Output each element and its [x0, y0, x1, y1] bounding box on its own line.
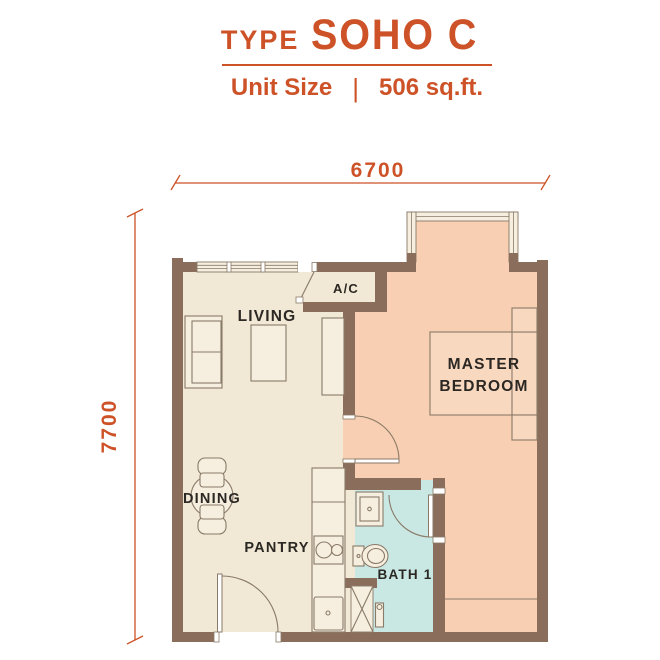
master-door-leaf: [355, 459, 399, 463]
bay-right-post: [509, 253, 518, 272]
ac-door-jamb: [296, 297, 303, 303]
service-shaft: [351, 586, 373, 632]
height-dimension-value: 7700: [98, 399, 121, 454]
vanity-basin: [356, 492, 383, 526]
floor-plan-drawing: LIVING A/C MASTER BEDROOM DINING PANTRY …: [0, 0, 660, 660]
window-mullion: [261, 262, 265, 272]
entrance-door-leaf: [218, 574, 223, 632]
pantry-counter: [312, 468, 345, 632]
wall-living-master-divider: [343, 312, 355, 415]
master-door-opening: [343, 415, 355, 463]
dining-place-setting: [200, 473, 224, 487]
width-dimension-value: 6700: [351, 159, 406, 182]
shower-fixture: [376, 603, 384, 627]
sink-bowl-large: [316, 542, 332, 558]
wall-top-master-right: [518, 262, 537, 272]
toilet-bowl-inner: [368, 549, 385, 564]
bath-doorway: [421, 480, 433, 490]
door-jamb: [433, 488, 445, 494]
door-jamb: [276, 632, 281, 642]
toilet-flush-button: [357, 555, 360, 558]
bed: [430, 332, 537, 415]
window-mullion: [227, 262, 231, 272]
wall-ac-bottom: [303, 302, 387, 312]
bath-label: BATH 1: [378, 567, 433, 582]
sink-bowl-small: [332, 545, 343, 556]
living-window-band: [197, 262, 298, 272]
wall-right: [537, 260, 548, 642]
entrance-opening: [218, 632, 278, 642]
nightstand-bottom: [512, 415, 537, 440]
wall-bath-top: [343, 478, 421, 490]
floors: [183, 221, 538, 632]
wall-left: [172, 258, 183, 642]
door-jamb: [214, 632, 219, 642]
dining-label: DINING: [183, 491, 241, 507]
door-jamb: [343, 459, 355, 463]
nightstand-top: [512, 308, 537, 332]
dining-place-setting: [200, 505, 224, 519]
basin-drain: [368, 507, 372, 511]
bay-left-post: [407, 253, 416, 272]
master-bedroom-label-line2: BEDROOM: [439, 378, 528, 395]
door-jamb: [343, 415, 355, 419]
floor-plan-page: TYPE SOHO C Unit Size | 506 sq.ft.: [0, 0, 660, 660]
master-bedroom-label-line1: MASTER: [448, 356, 521, 373]
bath-door-leaf: [429, 495, 434, 537]
wall-top-master-left: [387, 262, 407, 272]
shower-mixer-knob: [377, 605, 382, 610]
pantry-label: PANTRY: [244, 540, 309, 556]
ac-door-jamb: [312, 263, 317, 272]
toilet: [353, 545, 388, 568]
living-label: LIVING: [238, 308, 297, 325]
appliance-knob: [326, 611, 330, 615]
bay-window-floor: [416, 221, 509, 272]
sofa: [185, 316, 222, 388]
living-window: [197, 262, 298, 272]
tv-cabinet: [322, 318, 344, 395]
coffee-table: [251, 325, 286, 381]
door-jamb: [433, 537, 445, 543]
wall-bath-right: [433, 478, 445, 632]
bathroom-fixtures: [351, 492, 388, 632]
ac-label: A/C: [333, 281, 359, 296]
